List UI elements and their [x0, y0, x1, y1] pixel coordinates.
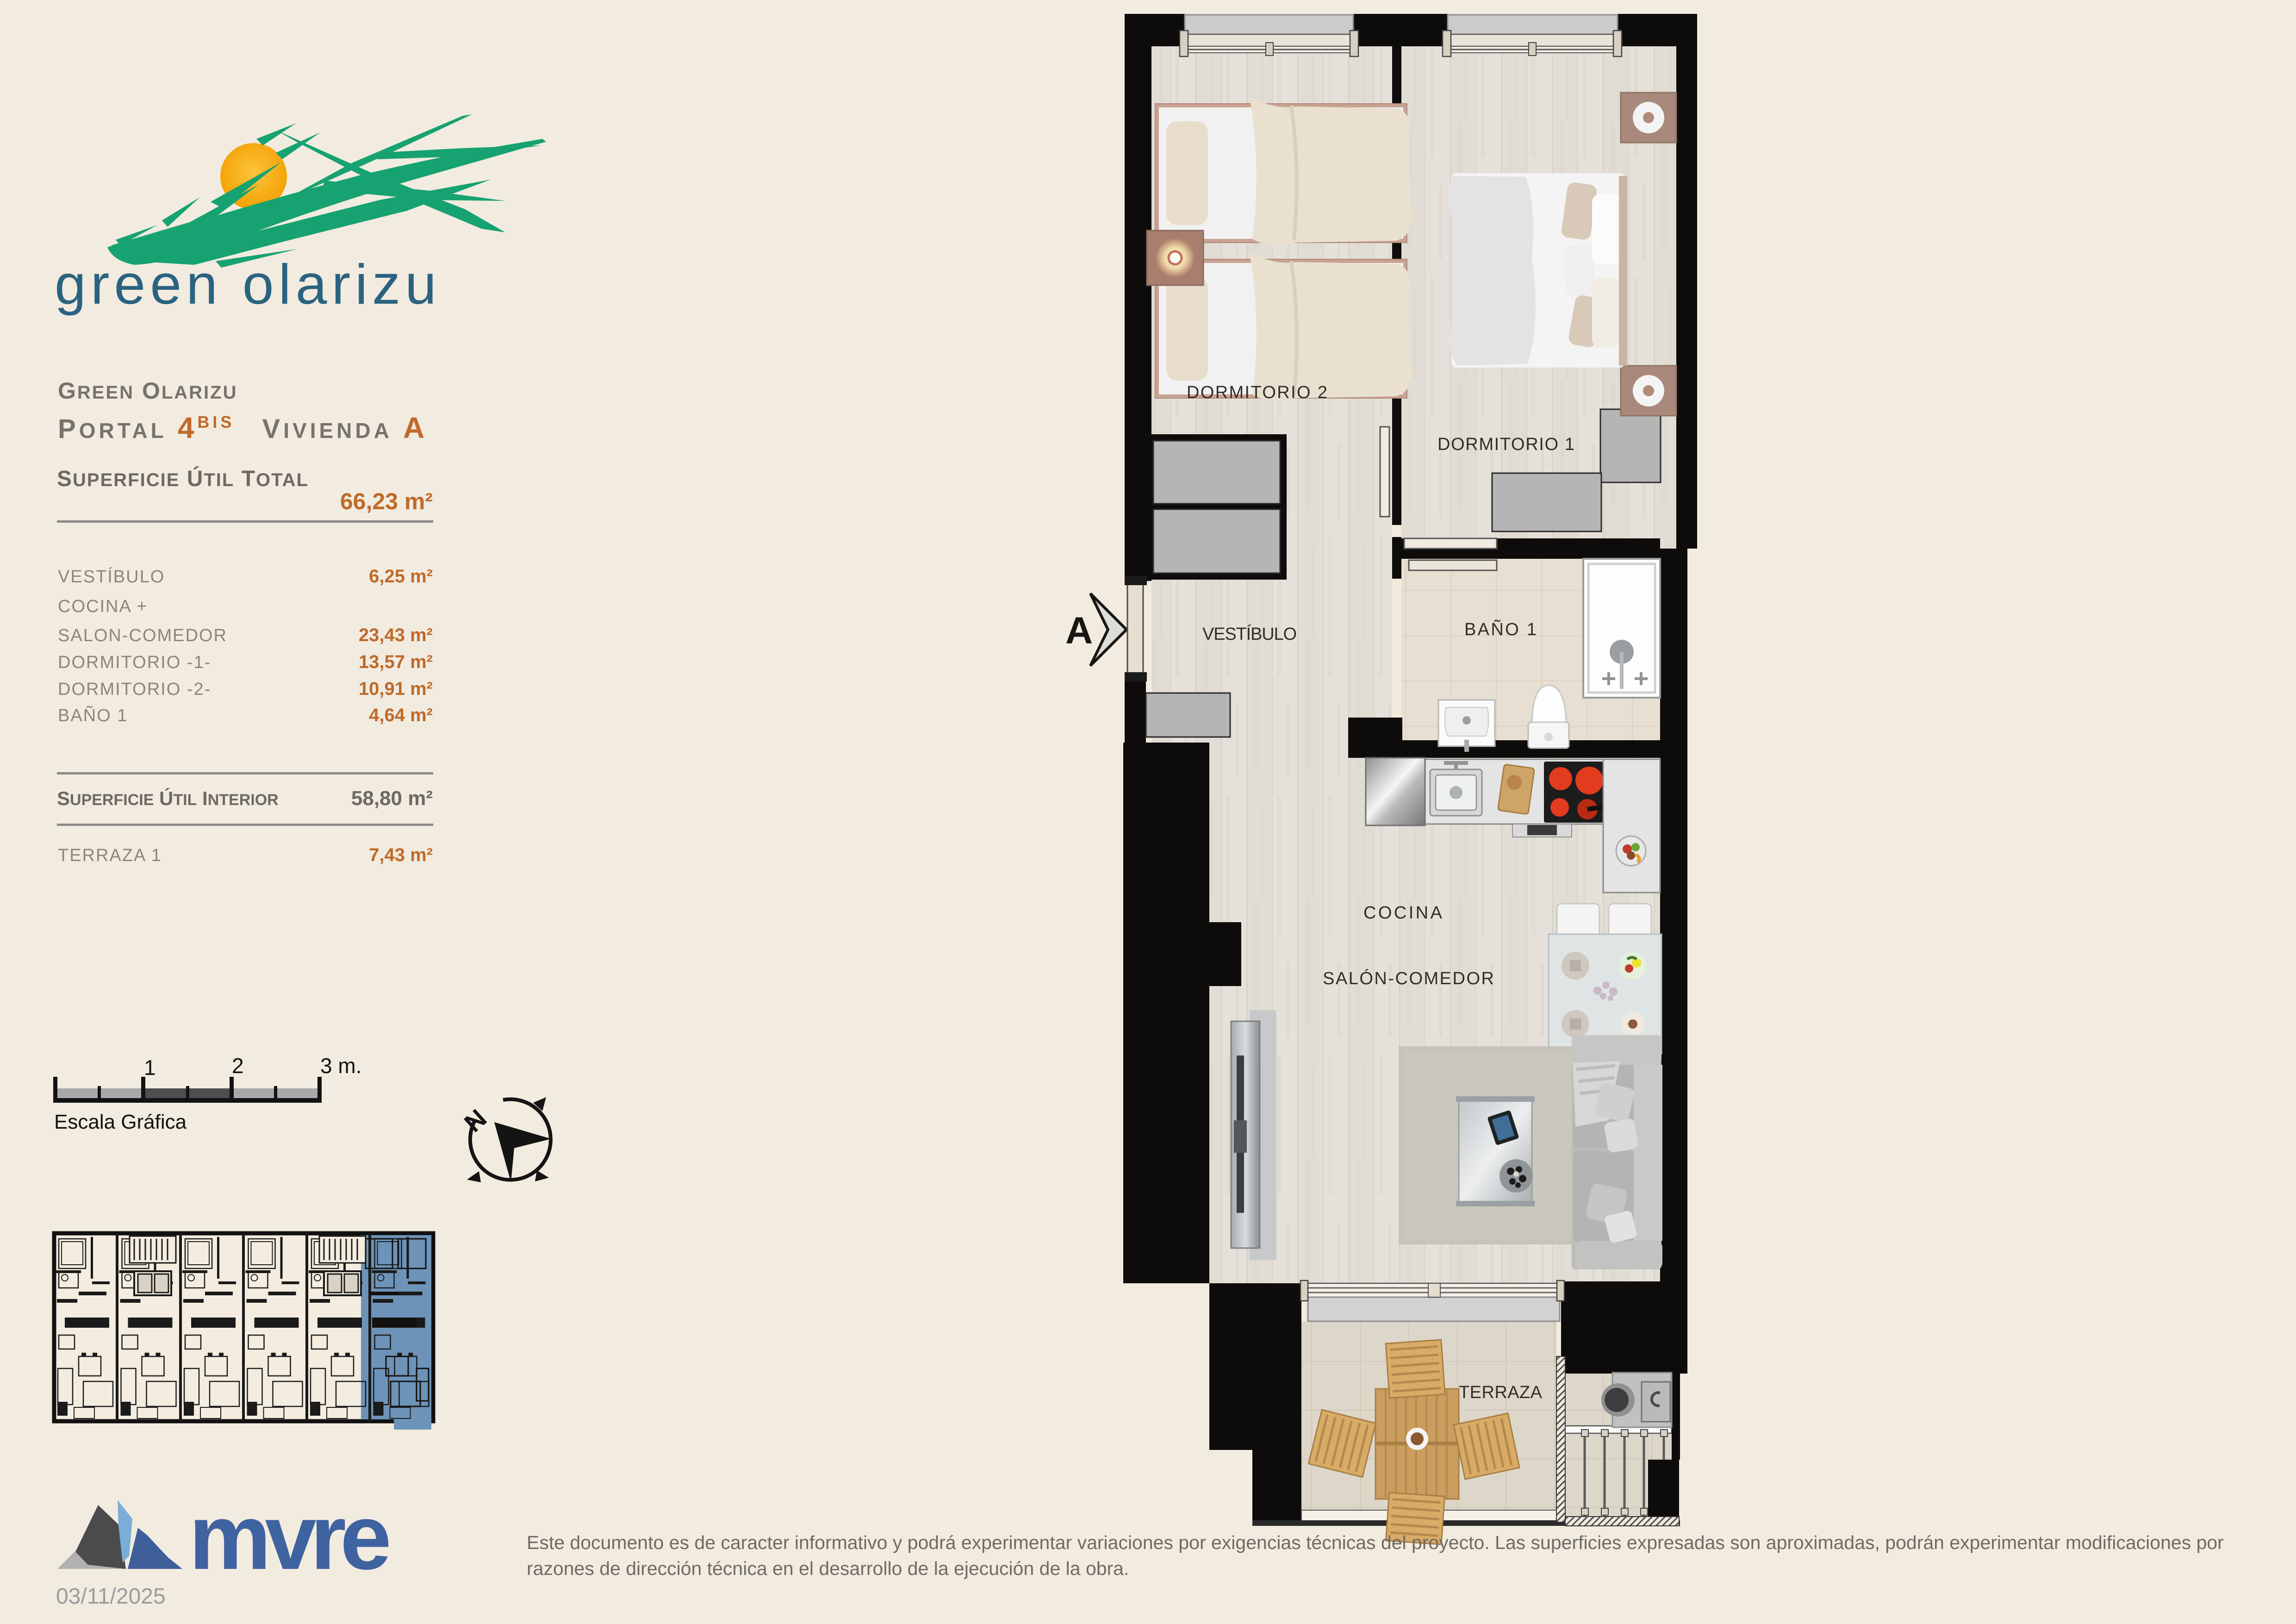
svg-text:VESTÍBULO: VESTÍBULO	[1202, 624, 1297, 644]
svg-text:Este documento es de caracter: Este documento es de caracter informativ…	[527, 1532, 2224, 1553]
svg-text:1: 1	[144, 1056, 156, 1080]
svg-text:GREEN OLARIZU: GREEN OLARIZU	[58, 378, 237, 404]
svg-text:VESTÍBULO: VESTÍBULO	[58, 567, 165, 587]
svg-text:03/11/2025: 03/11/2025	[56, 1584, 166, 1609]
svg-text:TERRAZA: TERRAZA	[1459, 1383, 1543, 1402]
svg-text:COCINA +: COCINA +	[58, 597, 148, 616]
svg-text:DORMITORIO 1: DORMITORIO 1	[1437, 435, 1574, 454]
svg-text:PORTAL 4BIS VIVIENDA A: PORTAL 4BIS VIVIENDA A	[58, 411, 428, 444]
svg-text:Escala Gráfica: Escala Gráfica	[54, 1111, 187, 1133]
svg-text:mvre: mvre	[189, 1486, 390, 1589]
svg-text:SALON-COMEDOR: SALON-COMEDOR	[58, 626, 227, 645]
svg-text:DORMITORIO -2-: DORMITORIO -2-	[58, 680, 211, 699]
svg-text:4,64 m²: 4,64 m²	[369, 705, 433, 725]
svg-text:DORMITORIO -1-: DORMITORIO -1-	[58, 653, 211, 672]
svg-text:razones de dirección técnica e: razones de dirección técnica en el desar…	[527, 1558, 1129, 1579]
svg-text:58,80 m²: 58,80 m²	[351, 787, 433, 810]
svg-text:66,23 m²: 66,23 m²	[340, 488, 433, 514]
svg-text:23,43 m²: 23,43 m²	[359, 625, 433, 645]
svg-text:BAÑO 1: BAÑO 1	[58, 706, 128, 725]
svg-text:3 m.: 3 m.	[320, 1054, 361, 1078]
svg-text:7,43 m²: 7,43 m²	[369, 845, 433, 865]
svg-text:13,57 m²: 13,57 m²	[359, 652, 433, 672]
svg-text:green olarizu: green olarizu	[55, 253, 441, 316]
svg-text:N: N	[459, 1103, 492, 1137]
svg-text:A: A	[1065, 610, 1093, 652]
svg-text:COCINA: COCINA	[1363, 903, 1443, 923]
svg-text:10,91 m²: 10,91 m²	[359, 679, 433, 699]
svg-text:SUPERFICIE ÚTIL INTERIOR: SUPERFICIE ÚTIL INTERIOR	[57, 787, 279, 809]
svg-text:TERRAZA 1: TERRAZA 1	[58, 846, 162, 865]
svg-text:2: 2	[232, 1054, 244, 1078]
svg-text:SUPERFICIE ÚTIL TOTAL: SUPERFICIE ÚTIL TOTAL	[57, 466, 309, 491]
svg-text:DORMITORIO 2: DORMITORIO 2	[1187, 383, 1327, 402]
svg-text:6,25 m²: 6,25 m²	[369, 566, 433, 587]
